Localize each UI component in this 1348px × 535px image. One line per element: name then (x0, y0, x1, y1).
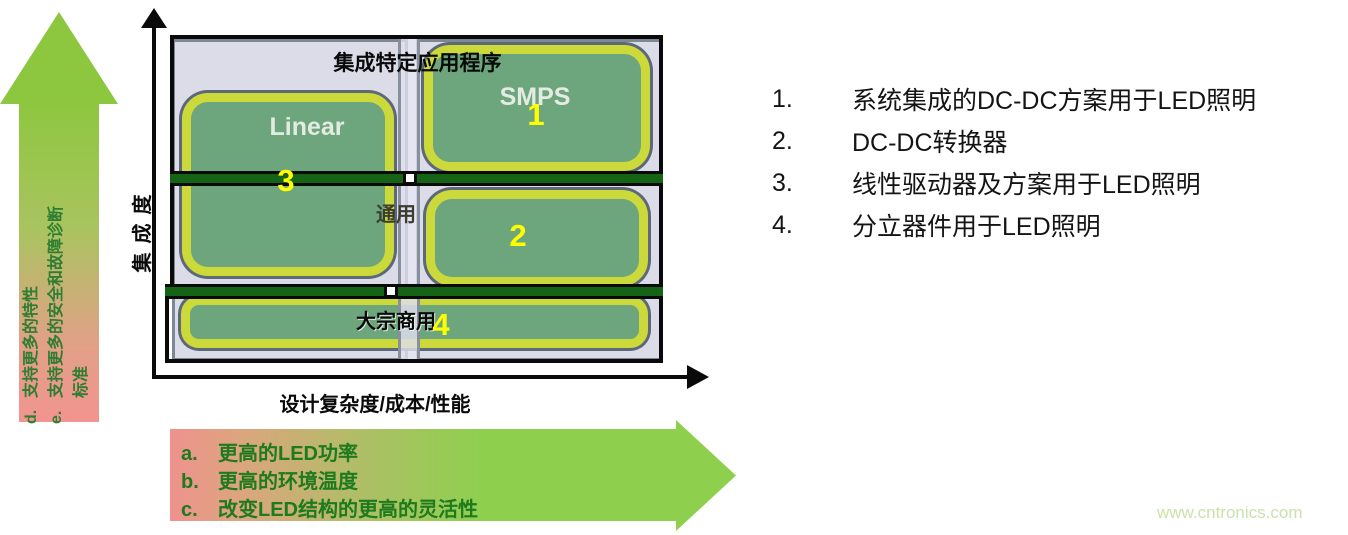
item-letter: e. (44, 398, 69, 424)
horizontal-arrow-line-b: b. 更高的环境温度 (181, 468, 661, 496)
divider-notch-2 (384, 284, 398, 298)
x-axis-label: 设计复杂度/成本/性能 (240, 388, 510, 417)
legend-item-4: 4. 分立器件用于LED照明 (772, 204, 1338, 246)
right-arrow-icon (676, 420, 736, 531)
legend-number: 1. (772, 85, 852, 114)
vertical-arrow-line-e: e. 支持更多的安全和故障诊断 (44, 94, 69, 424)
horizontal-arrow-text: a. 更高的LED功率 b. 更高的环境温度 c. 改变LED结构的更高的灵活性 (181, 440, 661, 524)
box-number-1: 1 (523, 97, 549, 133)
vertical-arrow-line-cont: 标准 (69, 94, 94, 424)
row-frame-general (170, 178, 663, 290)
legend-text: 线性驱动器及方案用于LED照明 (852, 165, 1201, 201)
row-divider-band-2 (165, 284, 663, 299)
item-text: 更高的LED功率 (218, 440, 358, 468)
item-letter: a. (181, 440, 218, 468)
y-axis-label: 集成度 (126, 164, 152, 294)
horizontal-arrow-line-a: a. 更高的LED功率 (181, 440, 661, 468)
horizontal-arrow-line-c: c. 改变LED结构的更高的灵活性 (181, 496, 661, 524)
item-text: 改变LED结构的更高的灵活性 (218, 496, 478, 524)
legend-text: 系统集成的DC-DC方案用于LED照明 (852, 81, 1256, 117)
up-arrow-icon (0, 12, 118, 104)
legend-number: 2. (772, 127, 852, 156)
vertical-arrow-text: d. 支持更多的特性 e. 支持更多的安全和故障诊断 标准 (19, 94, 99, 424)
legend-number: 4. (772, 211, 852, 240)
row1-label: 集成特定应用程序 (280, 47, 555, 77)
x-axis-arrowhead-icon (687, 365, 709, 389)
legend-list: 1. 系统集成的DC-DC方案用于LED照明 2. DC-DC转换器 3. 线性… (772, 78, 1338, 246)
item-letter: b. (181, 468, 218, 496)
legend-text: 分立器件用于LED照明 (852, 207, 1101, 243)
legend-item-3: 3. 线性驱动器及方案用于LED照明 (772, 162, 1338, 204)
diagram-canvas: d. 支持更多的特性 e. 支持更多的安全和故障诊断 标准 集成度 设计复杂度/… (0, 0, 1348, 535)
legend-item-2: 2. DC-DC转换器 (772, 120, 1338, 162)
item-text: 支持更多的特性 (19, 286, 44, 398)
vertical-arrow-line-d: d. 支持更多的特性 (19, 94, 44, 424)
item-letter (69, 398, 94, 424)
legend-number: 3. (772, 169, 852, 198)
item-text: 支持更多的安全和故障诊断 (44, 206, 69, 398)
linear-box-label: Linear (227, 113, 387, 142)
item-text: 更高的环境温度 (218, 468, 358, 496)
item-letter: c. (181, 496, 218, 524)
watermark: www.cntronics.com (1157, 503, 1302, 523)
row2-label: 通用 (336, 198, 456, 227)
box-number-3: 3 (273, 163, 299, 199)
box-number-2: 2 (505, 218, 531, 254)
x-axis-line (152, 375, 689, 379)
item-text: 标准 (69, 366, 94, 398)
divider-notch-1 (403, 171, 417, 185)
y-axis-arrowhead-icon (141, 8, 167, 28)
box-number-4: 4 (428, 307, 454, 343)
legend-item-1: 1. 系统集成的DC-DC方案用于LED照明 (772, 78, 1338, 120)
legend-text: DC-DC转换器 (852, 123, 1008, 159)
item-letter: d. (19, 398, 44, 424)
